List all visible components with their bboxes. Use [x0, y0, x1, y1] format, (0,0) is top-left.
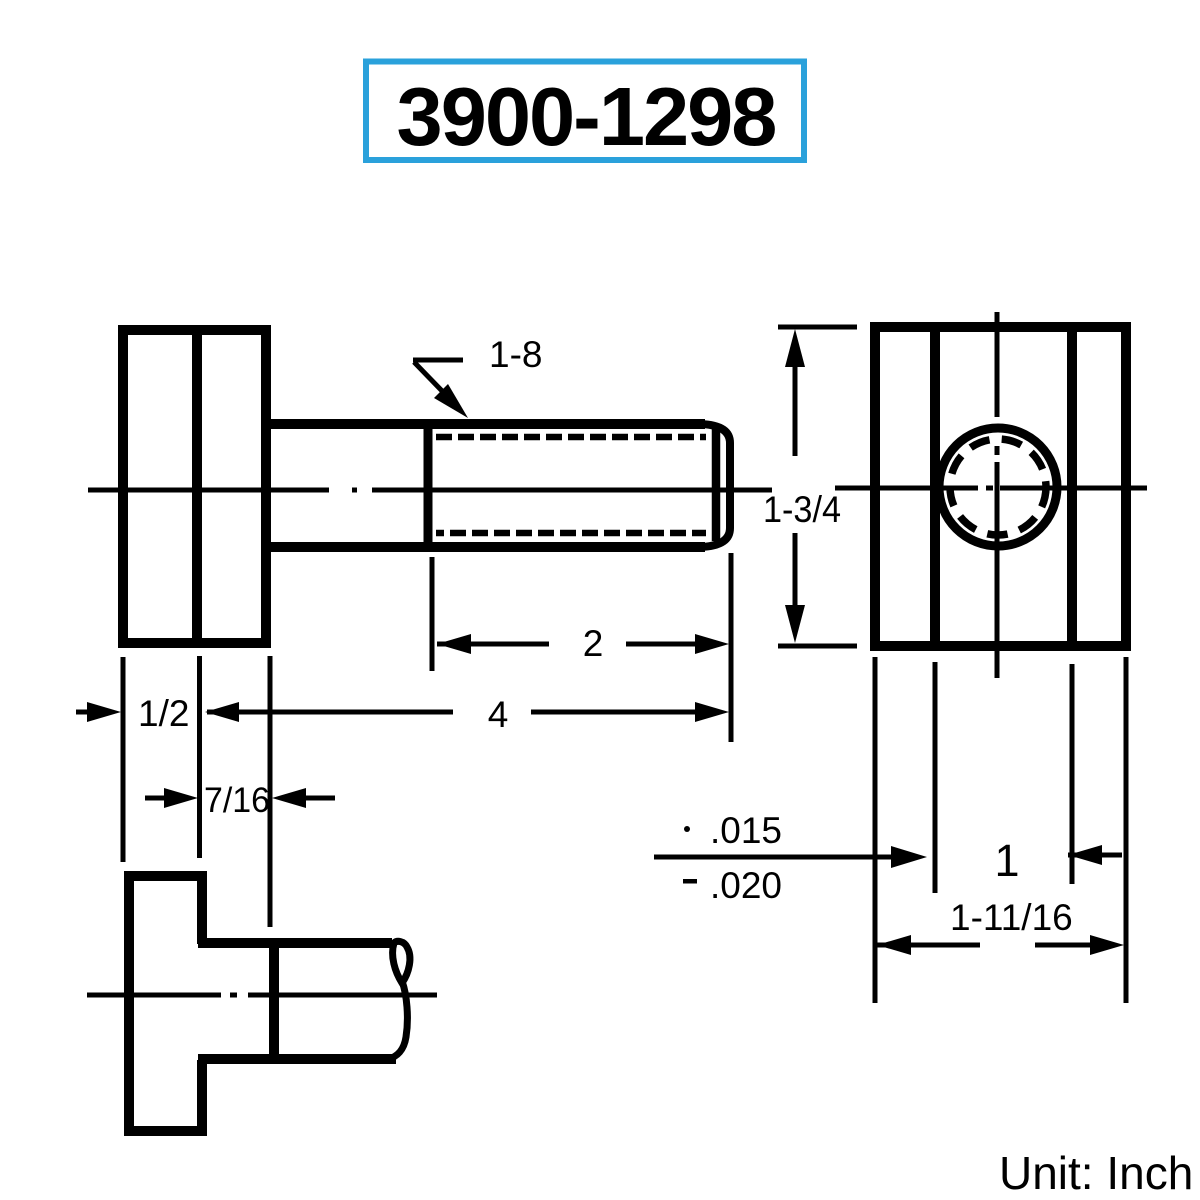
svg-text:4: 4 — [488, 694, 509, 735]
svg-text:1-11/16: 1-11/16 — [950, 897, 1073, 938]
svg-text:1-8: 1-8 — [489, 334, 542, 375]
svg-text:Unit: Inch: Unit: Inch — [999, 1147, 1193, 1199]
svg-text:.020: .020 — [710, 865, 782, 906]
svg-text:1/2: 1/2 — [138, 693, 189, 734]
svg-text:2: 2 — [583, 623, 604, 664]
svg-text:.015: .015 — [710, 810, 782, 851]
svg-text:3900-1298: 3900-1298 — [397, 70, 776, 163]
svg-text:7/16: 7/16 — [204, 781, 270, 820]
svg-text:1-3/4: 1-3/4 — [763, 489, 841, 530]
svg-text:1: 1 — [994, 835, 1019, 886]
